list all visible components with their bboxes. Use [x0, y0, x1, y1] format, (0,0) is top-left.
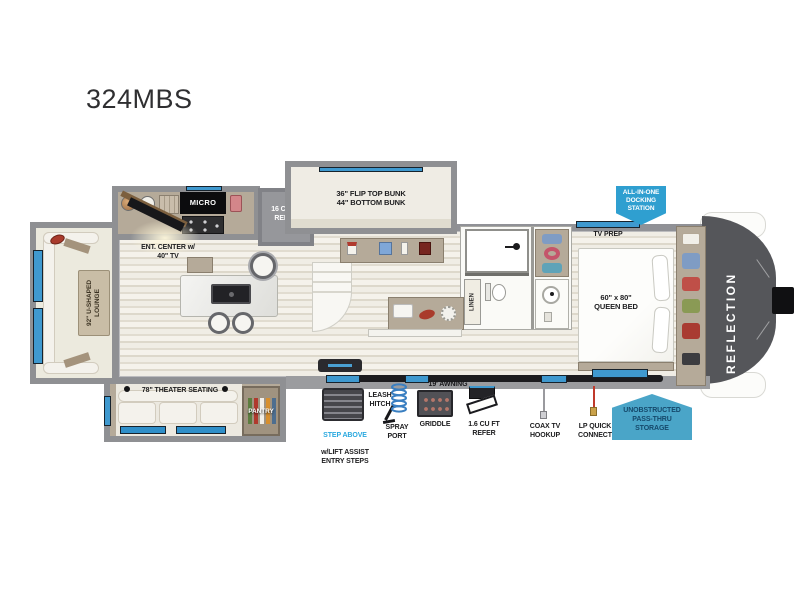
front-cap: REFLECTION	[702, 216, 776, 384]
kitchen-decor-pink	[230, 195, 242, 212]
theater-seat-1	[118, 402, 156, 424]
pass-thru-label: UNOBSTRUCTED PASS-THRU STORAGE	[612, 407, 692, 433]
vanity	[535, 279, 569, 329]
pillow-2	[651, 306, 670, 353]
pillow-1	[651, 254, 670, 301]
docking-station-label: ALL-IN-ONE DOCKING STATION	[616, 189, 666, 213]
clothes-teal	[542, 263, 562, 273]
bar-stool-top	[250, 253, 276, 279]
brand-logo: REFLECTION	[724, 226, 738, 374]
docking-station-callout: ALL-IN-ONE DOCKING STATION	[616, 186, 666, 225]
vanity-item	[544, 312, 552, 322]
wardrobe-item-blue	[682, 253, 700, 269]
vanity-faucet	[550, 292, 554, 296]
lp-connector-icon	[590, 407, 597, 416]
coax-cable-icon	[543, 388, 545, 413]
lounge-table: 92" U-SHAPED LOUNGE	[78, 270, 110, 336]
bath-wall	[531, 227, 534, 329]
toilet-bowl	[492, 284, 506, 301]
clothes-donut-red	[544, 247, 560, 260]
wardrobe-item-red	[682, 277, 700, 291]
theater-window-left	[104, 396, 111, 426]
queen-bed-label: 60" x 80" QUEEN BED	[583, 293, 649, 312]
coax-connector-icon	[540, 411, 547, 419]
bunk-label: 36" FLIP TOP BUNK 44" BOTTOM BUNK	[291, 189, 451, 208]
bread-decor	[418, 308, 436, 321]
bunk-deck	[291, 219, 451, 228]
toilet-tank	[485, 283, 491, 301]
griddle-label: GRIDDLE	[412, 421, 458, 430]
bathroom: LINEN	[460, 226, 572, 330]
shower-arm	[505, 246, 515, 248]
cutting-board	[393, 304, 413, 318]
lp-line-icon	[593, 386, 595, 409]
theater-floor-mat-2	[176, 426, 226, 434]
leash-hitch-label: LEASH HITCH	[363, 392, 397, 410]
theater-label: 78" THEATER SEATING	[120, 387, 240, 396]
wardrobe-item-white	[682, 233, 700, 245]
entry-step-mat	[318, 359, 362, 372]
galley-counter	[388, 297, 464, 330]
page-title: 324MBS	[86, 84, 193, 115]
pass-thru-callout: UNOBSTRUCTED PASS-THRU STORAGE	[612, 394, 692, 440]
bar-stool-1	[208, 312, 230, 334]
bedroom-wardrobe	[676, 226, 706, 386]
queen-bed: 60" x 80" QUEEN BED	[578, 248, 674, 362]
theater-seat-2	[159, 402, 197, 424]
detergent-jug	[347, 242, 357, 255]
towel-gear-decor	[441, 306, 456, 321]
lounge-window-1	[33, 250, 43, 302]
theater-slide: 78" THEATER SEATING PANTRY	[104, 378, 286, 442]
lounge-label: 92" U-SHAPED LOUNGE	[86, 271, 102, 335]
lounge-window-2	[33, 308, 43, 364]
island-faucet	[229, 292, 234, 297]
box-darkred	[419, 242, 431, 255]
step-above-label: STEP ABOVE w/LIFT ASSIST ENTRY STEPS	[314, 423, 376, 476]
tv-prep-window	[576, 221, 640, 228]
hitch-pin	[772, 287, 794, 314]
lounge-sofa-left	[43, 232, 55, 374]
cap-accent-line-2	[756, 321, 769, 340]
entry-step-mat-stripe	[328, 364, 352, 367]
mini-refer-label: 1.6 CU FT REFER	[460, 421, 508, 439]
floorplan-page: 324MBS 19' AWNING 92" U-SHAPED LOUNGE MI…	[0, 0, 800, 600]
microwave: MICRO	[180, 192, 226, 214]
bedroom-bottom-window	[592, 369, 648, 378]
bottom-window-2	[541, 375, 567, 383]
bath-wardrobe	[535, 229, 569, 277]
linen-closet: LINEN	[464, 279, 481, 325]
bottom-window-1	[405, 375, 429, 383]
shower	[465, 229, 529, 273]
linen-label: LINEN	[469, 270, 476, 334]
laundry-bag-blue	[379, 242, 392, 255]
pantry-label: PANTRY	[244, 408, 278, 416]
tv-prep-label: TV PREP	[576, 231, 640, 240]
bottle-white	[401, 242, 408, 255]
pantry-cabinet: PANTRY	[242, 386, 280, 436]
lounge-slide: 92" U-SHAPED LOUNGE	[30, 222, 118, 384]
lp-label: LP QUICK CONNECT	[571, 423, 619, 441]
cap-accent-line-1	[756, 259, 769, 278]
kitchen-island	[180, 275, 278, 317]
clothes-blue	[542, 234, 562, 244]
griddle-icon	[417, 390, 453, 417]
step-above-label-blue: STEP ABOVE	[314, 432, 376, 441]
bar-stool-2	[232, 312, 254, 334]
theater-floor-mat-1	[120, 426, 166, 434]
wardrobe-item-red2	[682, 323, 700, 339]
kitchen-window	[186, 186, 222, 191]
bunk-dresser	[340, 238, 444, 263]
wardrobe-item-green	[682, 299, 700, 313]
entry-door-window	[326, 375, 360, 383]
bunk-slide: 36" FLIP TOP BUNK 44" BOTTOM BUNK	[285, 161, 457, 234]
entry-steps-icon	[322, 388, 364, 421]
wardrobe-item-dark	[682, 353, 700, 365]
theater-seat-3	[200, 402, 238, 424]
bunk-window	[319, 167, 423, 172]
step-above-label-rest: w/LIFT ASSIST ENTRY STEPS	[314, 449, 376, 467]
counter-ledge	[368, 329, 462, 337]
coax-label: COAX TV HOOKUP	[521, 423, 569, 441]
ent-center-label: ENT. CENTER w/ 40" TV	[128, 244, 208, 262]
